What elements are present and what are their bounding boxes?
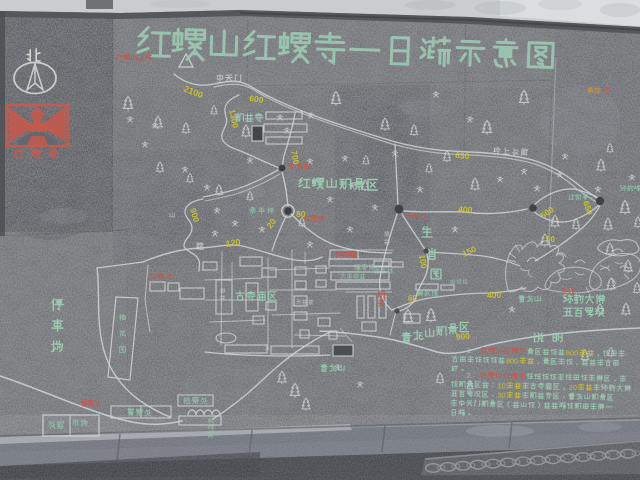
svg-text:120: 120	[225, 237, 241, 249]
svg-text:600: 600	[506, 356, 519, 365]
svg-text:800: 800	[566, 348, 579, 357]
svg-text:30: 30	[497, 391, 506, 400]
svg-text:400: 400	[458, 204, 473, 215]
svg-text:60: 60	[408, 294, 417, 303]
svg-text:1.: 1.	[467, 346, 473, 355]
svg-text:80: 80	[296, 209, 306, 219]
svg-text:2.: 2.	[466, 371, 472, 380]
svg-text:600: 600	[249, 93, 265, 105]
svg-text:400: 400	[487, 290, 501, 300]
svg-text:10: 10	[497, 381, 506, 390]
svg-text:900: 900	[455, 331, 470, 342]
svg-text:630: 630	[455, 150, 470, 161]
svg-text:20: 20	[569, 383, 578, 392]
svg-text:50: 50	[546, 235, 555, 244]
